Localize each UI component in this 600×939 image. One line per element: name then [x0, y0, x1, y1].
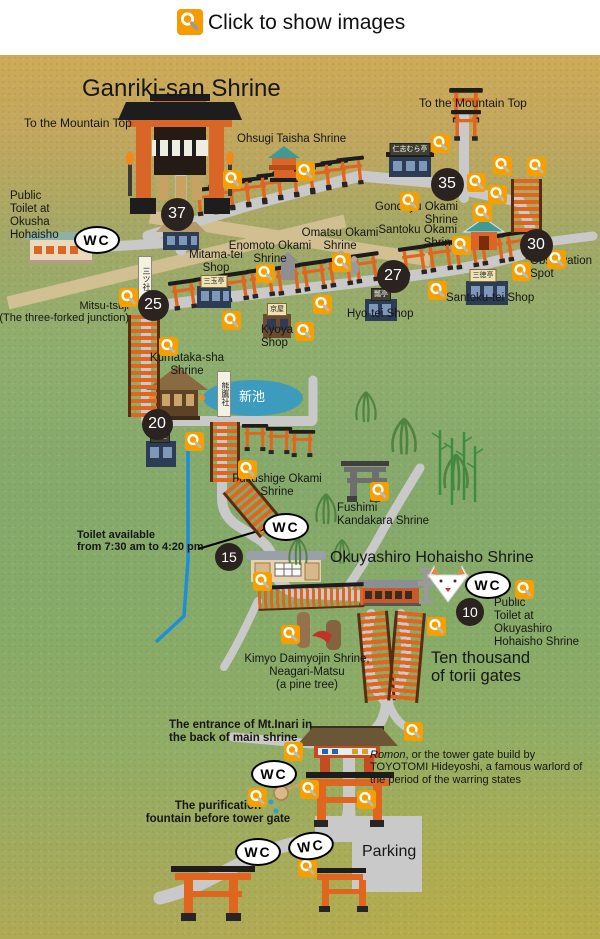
image-marker-magnifier-icon[interactable] [357, 790, 376, 809]
image-marker-magnifier-icon[interactable] [515, 580, 534, 599]
fushimi-kandakara-shrine: Fushimi Kandakara Shrine [337, 502, 429, 528]
public-toilet-okusha: Public Toilet at Okusha Hohaisho [10, 190, 59, 242]
image-marker-magnifier-icon[interactable] [248, 788, 267, 807]
image-marker-magnifier-icon[interactable] [284, 742, 303, 761]
purification-fountain: The purification fountain before tower g… [146, 800, 290, 826]
japanese-sign: 三徳亭 [470, 269, 497, 282]
image-marker-magnifier-icon[interactable] [256, 264, 275, 283]
image-marker-magnifier-icon[interactable] [238, 460, 257, 479]
entrance-mt-inari: The entrance of Mt.Inari in the back of … [169, 719, 312, 745]
image-marker-magnifier-icon[interactable] [332, 253, 351, 272]
mitsu-tsuji: Mitsu-tsuji (The three-forked junction) [0, 300, 129, 325]
image-marker-magnifier-icon[interactable] [527, 157, 546, 176]
toilet-hours: Toilet available from 7:30 am to 4:20 pm [77, 529, 204, 554]
image-marker-magnifier-icon[interactable] [493, 156, 512, 175]
santoku-tei-shop: Santoku-tei Shop [446, 292, 534, 305]
wc-toilet-badge: WC [286, 829, 335, 863]
map-number-badge-37: 37 [161, 198, 194, 231]
japanese-sign: 京屋 [267, 303, 287, 316]
kimyo-daimyojin: Kimyo Daimyojin Shrine, Neagari-Matsu (a… [244, 653, 369, 692]
image-marker-magnifier-icon[interactable] [253, 572, 272, 591]
torii-corridor-to-30 [511, 179, 542, 233]
title-ganriki: Ganriki-san Shrine [82, 76, 281, 103]
map-number-badge-30: 30 [520, 229, 553, 262]
kyoya-shop: Kyoya Shop [261, 324, 293, 350]
image-marker-magnifier-icon[interactable] [428, 281, 447, 300]
image-marker-magnifier-icon[interactable] [467, 173, 486, 192]
map-overlay: Ganriki-san ShrineTo the Mountain TopTo … [0, 0, 600, 939]
image-marker-magnifier-icon[interactable] [313, 295, 332, 314]
map-number-badge-25: 25 [138, 290, 169, 321]
hyo-tei-shop: Hyo-tei Shop [347, 308, 413, 321]
map-number-badge-20: 20 [142, 409, 173, 440]
senbon-torii-right [387, 611, 426, 703]
image-marker-magnifier-icon[interactable] [404, 722, 423, 741]
image-marker-magnifier-icon[interactable] [488, 185, 507, 204]
wc-toilet-badge: WC [251, 760, 297, 788]
image-marker-magnifier-icon[interactable] [370, 482, 389, 501]
okuyashiro-title: Okuyashiro Hohaisho Shrine [330, 549, 534, 567]
image-marker-magnifier-icon[interactable] [431, 134, 450, 153]
parking: Parking [362, 843, 416, 861]
image-marker-magnifier-icon[interactable] [281, 625, 300, 644]
image-marker-magnifier-icon[interactable] [222, 311, 241, 330]
image-marker-magnifier-icon[interactable] [296, 162, 315, 181]
page: Click to show images [0, 0, 600, 939]
image-marker-magnifier-icon[interactable] [185, 432, 204, 451]
wc-toilet-badge: WC [263, 513, 309, 541]
wc-toilet-badge: WC [465, 571, 511, 599]
map-number-badge-27: 27 [377, 260, 410, 293]
omatsu-okami-shrine: Omatsu Okami Shrine [302, 227, 379, 253]
image-marker-magnifier-icon[interactable] [300, 780, 319, 799]
image-marker-magnifier-icon[interactable] [427, 617, 446, 636]
romon-note: Romon, or the tower gate build by TOYOTO… [370, 749, 594, 786]
image-marker-magnifier-icon[interactable] [452, 236, 471, 255]
map-number-badge-15: 15 [215, 543, 243, 571]
japanese-sign: 仁志むら亭 [390, 143, 431, 156]
ohsugi-taisha-shrine: Ohsugi Taisha Shrine [237, 133, 346, 146]
japanese-sign: 熊鷹社 [217, 371, 231, 417]
shin-ike-pond-name: 新池 [239, 390, 265, 405]
image-marker-magnifier-icon[interactable] [400, 192, 419, 211]
wc-toilet-badge: WC [235, 838, 281, 866]
okuyashiro-torii-tunnel [258, 582, 365, 611]
japanese-sign: 三玉亭 [201, 275, 228, 288]
santoku-okami-shrine: Santoku Okami Shrine [378, 224, 457, 250]
map-number-badge-10: 10 [456, 598, 484, 626]
wc-toilet-badge: WC [74, 226, 120, 254]
image-marker-magnifier-icon[interactable] [473, 203, 492, 222]
public-toilet-okuyashiro: Public Toilet at Okuyashiro Hohaisho Shr… [494, 597, 579, 649]
image-marker-magnifier-icon[interactable] [119, 288, 138, 307]
map-number-badge-35: 35 [431, 168, 464, 201]
to-mountain-top-left: To the Mountain Top [24, 117, 132, 130]
to-mountain-top-right: To the Mountain Top [419, 97, 527, 110]
image-marker-magnifier-icon[interactable] [295, 322, 314, 341]
image-marker-magnifier-icon[interactable] [159, 337, 178, 356]
ten-thousand-torii: Ten thousand of torii gates [431, 649, 530, 686]
mitama-tei-shop: Mitama-tei Shop [189, 249, 243, 275]
image-marker-magnifier-icon[interactable] [298, 858, 317, 877]
image-marker-magnifier-icon[interactable] [223, 170, 242, 189]
image-marker-magnifier-icon[interactable] [512, 262, 531, 281]
